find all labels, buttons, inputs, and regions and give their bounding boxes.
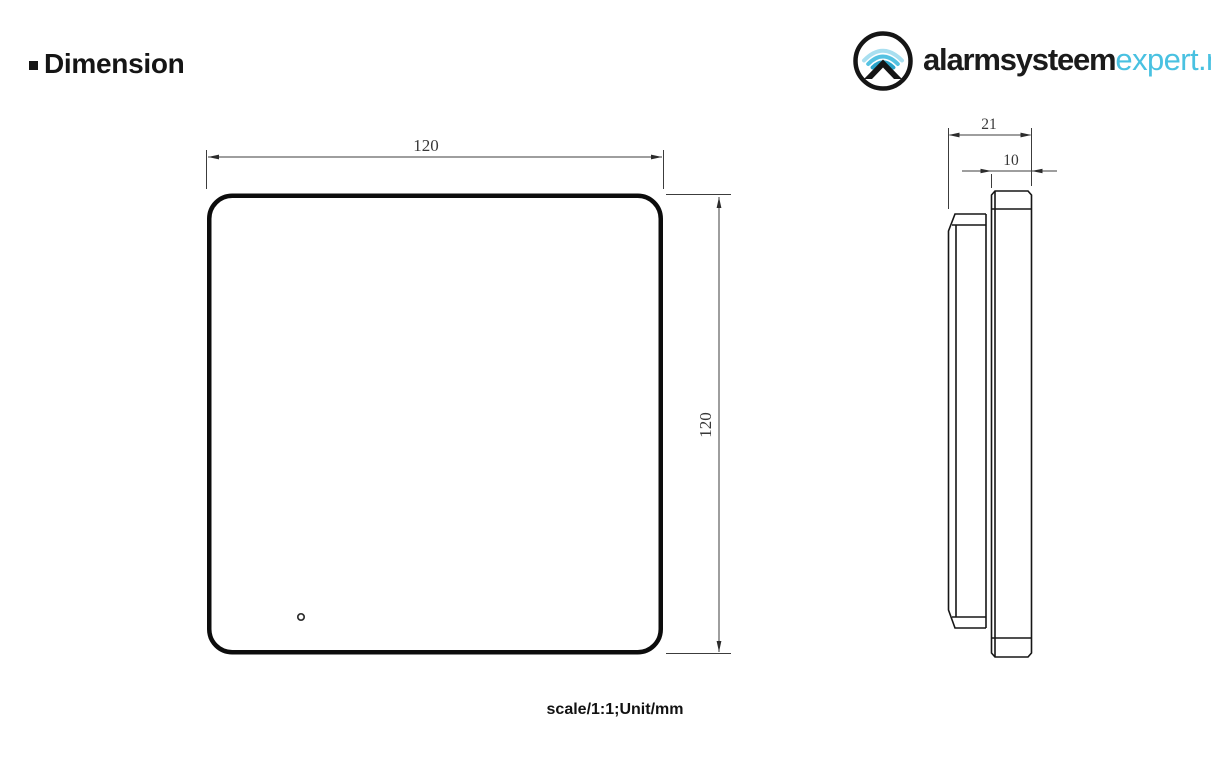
front-width-dimension: 120 bbox=[207, 136, 664, 189]
front-width-value: 120 bbox=[413, 136, 439, 155]
front-view bbox=[209, 196, 661, 653]
dimension-sheet: Dimension alarmsysteemexpert.nl bbox=[0, 0, 1211, 779]
side-thickness-value: 10 bbox=[1003, 152, 1019, 169]
front-panel-outline bbox=[209, 196, 661, 653]
side-view bbox=[949, 191, 1032, 657]
scale-note: scale/1:1;Unit/mm bbox=[400, 701, 830, 719]
side-depth-value: 21 bbox=[981, 116, 997, 133]
front-height-value: 120 bbox=[696, 412, 715, 438]
side-depth-dimension: 21 bbox=[949, 116, 1032, 209]
front-height-dimension: 120 bbox=[666, 195, 731, 654]
led-pinhole bbox=[298, 614, 304, 620]
back-housing-profile bbox=[949, 214, 987, 628]
front-plate-profile bbox=[992, 191, 1032, 657]
side-thickness-dimension: 10 bbox=[962, 152, 1057, 188]
technical-drawing: 120 120 bbox=[0, 0, 1211, 779]
